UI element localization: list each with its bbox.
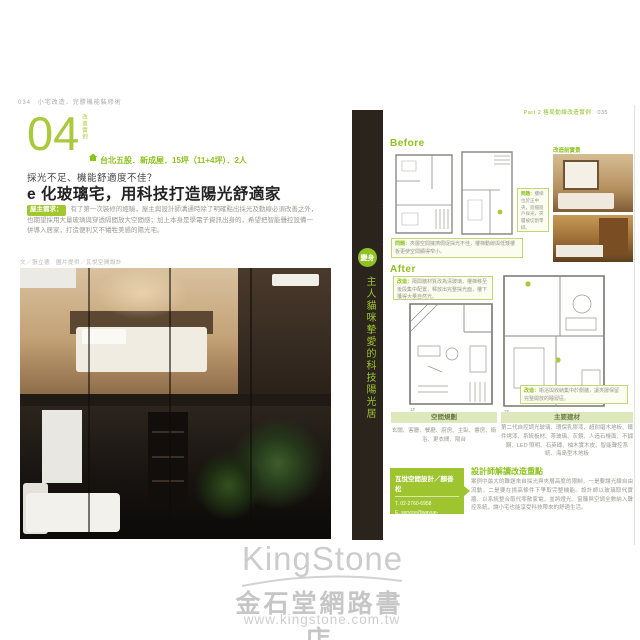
photo-glass-mullion — [88, 268, 90, 539]
photo-desk — [556, 245, 602, 257]
home-icon — [88, 152, 98, 162]
left-page-header: 034 小宅改造．完勝機能裝修術 — [18, 97, 122, 106]
materials-cell: 第二代自控調光玻璃、環保乳膠漆、超耐磨木地板、鐵件烤漆、系統板材、茶玻璃、灰鏡、… — [501, 424, 633, 459]
before-note-bottom-label: 問題： — [395, 241, 410, 247]
floorplan-after-1f — [408, 302, 494, 406]
before-note-side-label: 問題： — [521, 191, 535, 196]
spine-title-bottom: 主人貓咪摯愛的科技陽光居 — [362, 276, 377, 420]
designer-email: E. service@wayue-design.com — [395, 509, 459, 526]
designer-notes-text: 案例中最大的難題來自採光與夾層高度的限制，一是要讓光線自由流動，二是要在挑高條件… — [471, 478, 633, 513]
transform-badge: 變身 — [358, 248, 377, 267]
before-note-bottom-text: 夾層空間擁擠侷促採光不佳，樓梯動線與低矮樓板更使空間顯得窄小。 — [395, 241, 515, 255]
owner-needs-tag: 屋主需求： — [27, 205, 66, 216]
space-plan-header: 空間規劃 — [391, 412, 497, 423]
case-title: e 化玻璃宅，用科技打造陽光舒適家 — [27, 182, 281, 204]
after-note-top-label: 改造： — [397, 279, 412, 285]
designer-notes-title: 設計師解讀改造重點 — [471, 466, 543, 477]
book-title: 小宅改造．完勝機能裝修術 — [38, 100, 122, 106]
left-page-number: 034 — [18, 100, 31, 106]
materials-header: 主要建材 — [501, 412, 633, 423]
photo-roller-blind — [42, 410, 82, 483]
photo-credit: 文／張立德 圖片提供／瓦悅空間設計 — [20, 258, 122, 266]
case-info: 台北五股．新成屋．15坪（11+4坪）．2人 — [100, 155, 247, 166]
photo-ceiling — [20, 268, 76, 288]
chapter-label: Part 2 格局動線改造實例 — [524, 110, 592, 116]
photo-plant-center — [194, 451, 262, 520]
photo-bedroom-area — [20, 268, 331, 395]
right-page-header: Part 2 格局動線改造實例 035 — [430, 108, 608, 116]
watermark-url: www.kingstone.com.tw — [232, 612, 412, 627]
after-note-bottom-label: 改造： — [524, 388, 539, 394]
main-interior-photo — [20, 268, 331, 539]
floorplan-before-1f — [394, 153, 454, 235]
photo-wood-cabinet — [599, 218, 628, 256]
after-note-top: 改造：隔間牆材質改為清玻璃，樓梯移至後段集中配置，釋放出完整採光面，樓下獲得大量… — [393, 276, 493, 300]
before-photo-study — [553, 215, 633, 262]
page-edge — [634, 105, 635, 545]
designer-website: www.wayue-design.com — [395, 526, 459, 535]
book-preview-scan: 034 小宅改造．完勝機能裝修術 04 改造實例 台北五股．新成屋．15坪（11… — [0, 0, 640, 640]
after-section-label: After — [390, 264, 416, 275]
after-note-bottom-text: 衛浴與收納集中於側牆，讓夾層保留完整開放的睡寢區。 — [524, 388, 619, 402]
photo-living-area — [20, 406, 331, 539]
book-spine: 採光與機能舒適度不足 變身 主人貓咪摯愛的科技陽光居 — [352, 110, 383, 540]
right-page-number: 035 — [597, 110, 608, 116]
photo-glass-mullion — [250, 268, 252, 539]
photo-bed-before — [558, 193, 614, 208]
before-section-label: Before — [390, 138, 425, 149]
owner-needs: 屋主需求： 有了第一次裝修的經驗，屋主與設計師溝通時除了明確點出採光及動線必須改… — [27, 205, 319, 237]
case-number: 04 — [27, 110, 79, 157]
designer-phone: T. 02-2760-6958 — [395, 500, 459, 509]
before-photos-label: 改造前實景 — [553, 146, 581, 154]
photo-cabinet — [148, 412, 188, 510]
photo-sofa — [26, 493, 119, 533]
before-note-bottom: 問題：夾層空間擁擠侷促採光不佳，樓梯動線與低矮樓板更使空間顯得窄小。 — [391, 238, 523, 258]
space-plan-cell: 玄關、客廳、餐廳、廚房、主臥、書房、衛浴、更衣間、陽台 — [391, 427, 497, 445]
photo-glass-mullion — [169, 268, 171, 539]
designer-card-arrow — [464, 486, 470, 496]
designer-info-card: 瓦悅空間設計／顏善松 T. 02-2760-6958 E. service@wa… — [390, 468, 464, 514]
photo-warm-light — [95, 268, 188, 319]
before-note-side-text: 樓梯位於正中央，遮擋窗戶採光，夾層被切割零碎。 — [521, 191, 544, 230]
before-note-side: 問題：樓梯位於正中央，遮擋窗戶採光，夾層被切割零碎。 — [517, 188, 549, 232]
designer-firm: 瓦悅空間設計／顏善松 — [395, 473, 459, 497]
floorplan-before-2f — [460, 150, 514, 236]
photo-window — [563, 160, 599, 190]
watermark-brand: KingStone — [225, 540, 420, 578]
before-photo-bedroom — [553, 154, 633, 212]
photo-air-conditioner — [272, 274, 319, 285]
owner-needs-text: 有了第一次裝修的經驗，屋主與設計師溝通時除了明確點出採光及動線必須改善之外，也期… — [27, 206, 317, 234]
after-note-bottom: 改造：衛浴與收納集中於側牆，讓夾層保留完整開放的睡寢區。 — [520, 385, 628, 404]
case-label: 改造實例 — [80, 114, 88, 140]
